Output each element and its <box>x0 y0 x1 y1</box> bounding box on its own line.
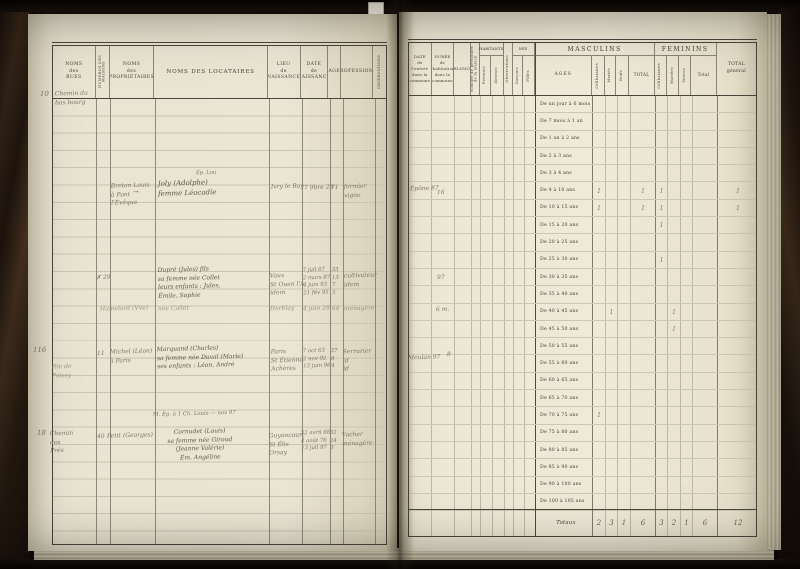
col-header-m-veufs: Veufs <box>616 56 629 95</box>
cell-f-mariees <box>668 234 681 250</box>
cell-f-total <box>693 217 718 233</box>
cell-duree <box>432 373 455 389</box>
cell-m-veufs <box>618 131 631 147</box>
cell-absents <box>493 252 505 268</box>
cell-absents <box>493 355 505 371</box>
cell-observations <box>505 510 514 536</box>
column-rule <box>155 99 156 544</box>
cell-m-total <box>631 131 656 147</box>
age-label: De 90 à 100 ans <box>536 477 593 493</box>
entry2-note: Ép. Lou <box>196 170 217 178</box>
cell-nombre <box>472 494 481 510</box>
cell-m-veufs <box>618 338 631 354</box>
cell-f-mariees <box>668 148 681 164</box>
age-label: De 55 à 60 ans <box>536 355 593 371</box>
cell-f-total <box>693 321 718 337</box>
cell-m-maries <box>606 148 618 164</box>
cell-m-total <box>631 113 656 129</box>
cell-m-maries: 1 <box>606 304 618 320</box>
entry4-professions: Serrurier id id <box>343 348 372 374</box>
cell-nes-garcons <box>514 165 525 181</box>
cell-nes-filles <box>525 96 536 112</box>
cell-nombre <box>472 373 481 389</box>
cell-nombre <box>472 321 481 337</box>
cell-f-celibataires <box>656 286 668 302</box>
col-header-absents-label: Absents <box>495 67 499 84</box>
cell-m-veufs <box>618 477 631 493</box>
col-header-f-celibataires: Célibataires <box>655 56 667 95</box>
cell-f-celibataires <box>656 269 668 285</box>
entry1-margin-number: 10 <box>40 90 49 100</box>
cell-f-mariees <box>668 131 681 147</box>
right-table: DATE de l'entrée dans la commune DURÉE d… <box>408 42 757 537</box>
cell-presents <box>481 234 493 250</box>
cell-f-mariees <box>668 96 681 112</box>
cell-date-entree <box>409 459 432 475</box>
cell-nes-garcons <box>514 321 525 337</box>
entry3-numero: ✗ 29 <box>96 274 111 283</box>
cell-observations <box>505 373 514 389</box>
cell-nes-garcons <box>514 425 525 441</box>
col-header-numeros-label: NUMÉROS DES MAISONS <box>99 46 106 98</box>
cell-m-veufs <box>618 390 631 406</box>
cell-m-veufs <box>618 113 631 129</box>
cell-date-entree <box>409 286 432 302</box>
cell-nes-garcons <box>514 269 525 285</box>
cell-f-total <box>693 200 718 216</box>
entry4-numero: 11 <box>97 350 105 359</box>
cell-date-entree <box>409 131 432 147</box>
entry1-street: Chemin du bas bourg <box>55 89 93 107</box>
entry5-proprietaire: Petit (Georges) <box>107 431 153 441</box>
totaux-row: Totaux 2 3 1 6 3 2 1 6 12 <box>409 509 756 536</box>
register-book-photo: NOMS des RUES NUMÉROS DES MAISONS NOMS d… <box>0 0 800 569</box>
cell-f-veuves <box>681 286 693 302</box>
age-row: De 80 à 85 ans <box>409 442 756 459</box>
cell-nes-filles <box>525 304 536 320</box>
cell-duree <box>432 200 455 216</box>
cell-nombre <box>472 252 481 268</box>
age-row: De 65 à 70 ans <box>409 390 756 407</box>
age-label: De 70 à 75 ans <box>536 407 593 423</box>
cell-f-mariees <box>668 373 681 389</box>
cell-absents <box>493 148 505 164</box>
cell-duree <box>432 510 455 536</box>
cell-nes-garcons <box>514 338 525 354</box>
cell-religion <box>455 182 472 198</box>
cell-m-veufs <box>618 304 631 320</box>
cell-total-general: 1 <box>718 200 758 216</box>
cell-absents <box>493 477 505 493</box>
cell-nes-garcons <box>514 304 525 320</box>
cell-date-entree <box>409 338 432 354</box>
cell-m-veufs <box>618 148 631 164</box>
age-row: De 10 à 15 ans 1 1 1 1 <box>409 200 756 217</box>
entry4-locataires: Marquand (Charles) sa femme née Duval (M… <box>157 344 244 372</box>
cell-f-celibataires <box>656 442 668 458</box>
age-row: De 90 à 100 ans <box>409 477 756 494</box>
book-cover-right <box>778 0 800 569</box>
cell-f-total <box>693 494 718 510</box>
age-row: De 2 à 3 ans <box>409 148 756 165</box>
cell-f-total <box>693 269 718 285</box>
col-header-date-naissance: DATE de NAISSANCE <box>301 46 329 98</box>
cell-observations <box>505 234 514 250</box>
cell-nes-garcons <box>514 96 525 112</box>
cell-total-general <box>718 355 758 371</box>
cell-f-veuves <box>681 131 693 147</box>
cell-m-maries <box>606 182 618 198</box>
cell-f-total <box>693 390 718 406</box>
cell-f-veuves <box>681 442 693 458</box>
age-row: De 20 à 25 ans <box>409 234 756 251</box>
cell-absents <box>493 407 505 423</box>
cell-nes-garcons <box>514 407 525 423</box>
cell-date-entree <box>409 234 432 250</box>
col-header-m-maries-label: Mariés <box>608 68 612 82</box>
cell-duree <box>432 165 455 181</box>
cell-m-maries <box>606 217 618 233</box>
cell-duree <box>432 131 455 147</box>
cell-date-entree <box>409 304 432 320</box>
cell-f-veuves <box>681 338 693 354</box>
cell-m-total <box>631 96 656 112</box>
cell-nombre <box>472 442 481 458</box>
cell-m-celibataires <box>593 477 606 493</box>
cell-m-maries <box>606 234 618 250</box>
double-rule <box>52 42 387 43</box>
entry5-numero: 40 <box>97 433 105 442</box>
left-table-header: NOMS des RUES NUMÉROS DES MAISONS NOMS d… <box>53 46 386 99</box>
cell-f-mariees <box>668 442 681 458</box>
cell-f-mariees <box>668 217 681 233</box>
cell-nombre <box>472 200 481 216</box>
age-row: De 85 à 90 ans <box>409 459 756 476</box>
cell-m-maries <box>606 252 618 268</box>
cell-m-total <box>631 269 656 285</box>
entry3-pencil-profession: ménagère <box>344 305 375 314</box>
age-row: De 70 à 75 ans 1 <box>409 407 756 424</box>
entry3-dates: 7 juil 67 2 mars 87 4 juin 93 21 fév 95 <box>303 267 331 298</box>
cell-date-entree <box>409 217 432 233</box>
cell-m-celibataires <box>593 425 606 441</box>
cell-m-total <box>631 494 656 510</box>
column-rule <box>269 99 270 544</box>
age-label: De 25 à 30 ans <box>536 252 593 268</box>
cell-m-total <box>631 373 656 389</box>
cell-observations <box>505 477 514 493</box>
cell-total-general <box>718 390 758 406</box>
cell-observations <box>505 338 514 354</box>
cell-m-veufs <box>618 321 631 337</box>
cell-f-veuves <box>681 96 693 112</box>
group-title-habitants: HABITANTS <box>480 43 503 56</box>
col-header-religion: RELIGION <box>454 43 471 95</box>
cell-m-total <box>631 304 656 320</box>
cell-religion <box>455 407 472 423</box>
cell-nombre <box>472 355 481 371</box>
cell-m-total <box>631 148 656 164</box>
cell-date-entree <box>409 442 432 458</box>
cell-observations <box>505 252 514 268</box>
col-header-ages: AGES <box>536 56 592 95</box>
cell-m-veufs <box>618 165 631 181</box>
age-label: De 85 à 90 ans <box>536 459 593 475</box>
cell-nes-garcons <box>514 217 525 233</box>
cell-f-mariees: 1 <box>668 321 681 337</box>
age-label: De 100 à 105 ans <box>536 494 593 510</box>
cell-nes-garcons <box>514 494 525 510</box>
cell-absents <box>493 304 505 320</box>
col-header-m-veufs-label: Veufs <box>620 70 624 81</box>
cell-religion <box>455 477 472 493</box>
cell-religion <box>455 148 472 164</box>
entry5-street: Chemin des Prés <box>50 430 73 456</box>
cell-observations <box>505 355 514 371</box>
cell-m-maries <box>606 269 618 285</box>
total-m-celibataires: 2 <box>593 510 606 536</box>
cell-m-celibataires <box>593 373 606 389</box>
cell-f-veuves <box>681 182 693 198</box>
cell-nes-filles <box>525 442 536 458</box>
cell-m-celibataires: 1 <box>593 200 606 216</box>
cell-f-total <box>693 304 718 320</box>
cell-f-celibataires <box>656 355 668 371</box>
age-label: De 2 à 3 ans <box>536 148 593 164</box>
total-general-value: 12 <box>718 510 758 536</box>
column-rule <box>343 99 344 544</box>
cell-absents <box>493 96 505 112</box>
cell-m-celibataires <box>593 113 606 129</box>
cell-m-maries <box>606 113 618 129</box>
book-cover-bottom <box>0 559 800 569</box>
cell-absents <box>493 459 505 475</box>
cell-f-total <box>693 338 718 354</box>
cell-f-veuves <box>681 477 693 493</box>
age-label: De 35 à 40 ans <box>536 286 593 302</box>
cell-m-total <box>631 442 656 458</box>
cell-presents <box>481 200 493 216</box>
cell-religion <box>455 200 472 216</box>
cell-absents <box>493 113 505 129</box>
col-header-m-celibataires: Célibataires <box>592 56 605 95</box>
cell-date-entree <box>409 321 432 337</box>
cell-m-veufs <box>618 182 631 198</box>
cell-nes-filles <box>525 407 536 423</box>
entry5-dates: 22 avril 68 4 août 76 13 juil 97 <box>301 430 331 454</box>
cell-nes-filles <box>525 477 536 493</box>
cell-absents <box>493 200 505 216</box>
cell-m-celibataires <box>593 252 606 268</box>
col-header-f-mariees: Mariées <box>667 56 680 95</box>
book-cover-top <box>0 0 800 12</box>
cell-observations <box>505 200 514 216</box>
cell-total-general <box>718 96 758 112</box>
cell-f-total <box>693 234 718 250</box>
cell-total-general <box>718 131 758 147</box>
cell-m-celibataires <box>593 148 606 164</box>
cell-m-maries <box>606 494 618 510</box>
cell-f-mariees <box>668 165 681 181</box>
cell-m-veufs <box>618 355 631 371</box>
cell-duree <box>432 148 455 164</box>
entry2-lieu: Ivry le Roy <box>271 183 304 192</box>
cell-total-general <box>718 373 758 389</box>
entry3-pencil-age: 68 <box>332 305 340 314</box>
cell-nes-filles <box>525 131 536 147</box>
totaux-label: Totaux <box>536 510 593 536</box>
cell-presents <box>481 442 493 458</box>
age-row: De 60 à 65 ans <box>409 373 756 390</box>
cell-date-entree <box>409 148 432 164</box>
cell-m-maries <box>606 165 618 181</box>
cell-nes-garcons <box>514 355 525 371</box>
cell-date-entree <box>409 477 432 493</box>
cell-nombre <box>472 182 481 198</box>
cell-observations <box>505 494 514 510</box>
cell-f-celibataires <box>656 113 668 129</box>
annotation-97: 97 <box>437 274 445 283</box>
cell-m-total <box>631 390 656 406</box>
age-row: De 7 mois à 1 an <box>409 113 756 130</box>
cell-observations <box>505 182 514 198</box>
cell-nes-garcons <box>514 234 525 250</box>
entry3-lieu: Vaux St Ouen l'A. idem <box>270 271 307 298</box>
age-label: De 1 an à 2 ans <box>536 131 593 147</box>
cell-nes-filles <box>525 200 536 216</box>
cell-date-entree <box>409 113 432 129</box>
cell-duree <box>432 338 455 354</box>
cell-observations <box>505 148 514 164</box>
age-label: De 3 à 4 ans <box>536 165 593 181</box>
cell-nes-filles <box>525 338 536 354</box>
age-label: De 40 à 45 ans <box>536 304 593 320</box>
cell-m-celibataires <box>593 338 606 354</box>
col-header-age: AGE <box>328 46 341 98</box>
age-label: De un jour à 6 mois <box>536 96 593 112</box>
entry3-locataires: Dupré (Jules) fils sa femme née Collet l… <box>158 265 221 301</box>
cell-f-veuves <box>681 304 693 320</box>
cell-f-celibataires <box>656 477 668 493</box>
column-rule <box>96 99 97 544</box>
cell-nombre <box>472 148 481 164</box>
cell-f-total <box>693 425 718 441</box>
col-group-masculins: MASCULINS AGES Célibataires Mariés Veufs… <box>535 43 655 95</box>
cell-observations <box>505 442 514 458</box>
entry4-margin-number: 116 <box>33 346 47 356</box>
cell-observations <box>505 390 514 406</box>
total-f-total: 6 <box>693 510 718 536</box>
age-label: De 60 à 65 ans <box>536 373 593 389</box>
cell-total-general <box>718 148 758 164</box>
cell-absents <box>493 131 505 147</box>
cell-f-mariees <box>668 459 681 475</box>
cell-absents <box>493 182 505 198</box>
cell-religion <box>455 165 472 181</box>
age-label: De 45 à 50 ans <box>536 321 593 337</box>
entry5-locataires: Cornudet (Louis) sa femme née Giroud (Je… <box>157 427 244 463</box>
cell-date-entree <box>409 425 432 441</box>
cell-nes-filles <box>525 252 536 268</box>
annotation-6m: 6 m. <box>436 306 450 315</box>
age-label: De 50 à 55 ans <box>536 338 593 354</box>
cell-nombre <box>472 425 481 441</box>
cell-m-veufs <box>618 425 631 441</box>
entry3-pencil-lieu: Herblay <box>270 305 295 314</box>
cell-observations <box>505 286 514 302</box>
cell-f-total <box>693 407 718 423</box>
col-header-nes-garcons-label: Garçons <box>516 67 520 84</box>
cell-nes-garcons <box>514 390 525 406</box>
cell-religion <box>455 234 472 250</box>
cell-f-celibataires <box>656 407 668 423</box>
annotation-meulan: Meulan 97 <box>408 354 441 363</box>
cell-nes-filles <box>525 355 536 371</box>
column-rule <box>375 99 376 544</box>
cell-observations <box>505 407 514 423</box>
cell-presents <box>481 425 493 441</box>
cell-m-veufs <box>618 96 631 112</box>
cell-m-veufs <box>618 217 631 233</box>
cell-m-total <box>631 425 656 441</box>
cell-f-total <box>693 442 718 458</box>
cell-m-veufs <box>618 234 631 250</box>
cell-total-general <box>718 286 758 302</box>
total-m-total: 6 <box>631 510 656 536</box>
cell-total-general <box>718 217 758 233</box>
cell-f-celibataires: 1 <box>656 182 668 198</box>
age-row: De 3 à 4 ans <box>409 165 756 182</box>
column-rule <box>110 99 111 544</box>
double-rule <box>408 39 757 40</box>
cell-f-mariees <box>668 182 681 198</box>
cell-m-total: 1 <box>631 182 656 198</box>
cell-religion <box>455 252 472 268</box>
cell-m-maries <box>606 200 618 216</box>
entry5-lieu: Guyancourt St Élix Orsay <box>269 432 305 459</box>
cell-f-total <box>693 96 718 112</box>
cell-religion <box>455 321 472 337</box>
cell-religion <box>455 355 472 371</box>
cell-presents <box>481 407 493 423</box>
cell-nombre <box>472 510 481 536</box>
cell-nes-garcons <box>514 286 525 302</box>
cell-presents <box>481 113 493 129</box>
col-header-duree: DURÉE de l'habitation dans la commune <box>432 43 455 95</box>
cell-f-veuves <box>681 459 693 475</box>
age-label: De 80 à 85 ans <box>536 442 593 458</box>
cell-religion <box>455 96 472 112</box>
right-table-header: DATE de l'entrée dans la commune DURÉE d… <box>409 43 756 96</box>
age-row: De 30 à 35 ans <box>409 269 756 286</box>
group-title-feminins: FEMININS <box>655 43 716 56</box>
cell-m-maries <box>606 373 618 389</box>
cell-total-general <box>718 407 758 423</box>
col-header-total-general: TOTAL général <box>717 43 756 95</box>
cell-nes-garcons <box>514 442 525 458</box>
cell-f-mariees <box>668 407 681 423</box>
cell-nombre <box>472 304 481 320</box>
cell-m-maries <box>606 96 618 112</box>
cell-presents <box>481 321 493 337</box>
age-label: De 75 à 80 ans <box>536 425 593 441</box>
total-f-celibataires: 3 <box>656 510 668 536</box>
cell-absents <box>493 286 505 302</box>
cell-f-veuves <box>681 355 693 371</box>
cell-duree <box>432 390 455 406</box>
cell-f-mariees: 1 <box>668 304 681 320</box>
entry3-pencil-proprietaire: Hamelard (Vve) <box>100 304 148 314</box>
